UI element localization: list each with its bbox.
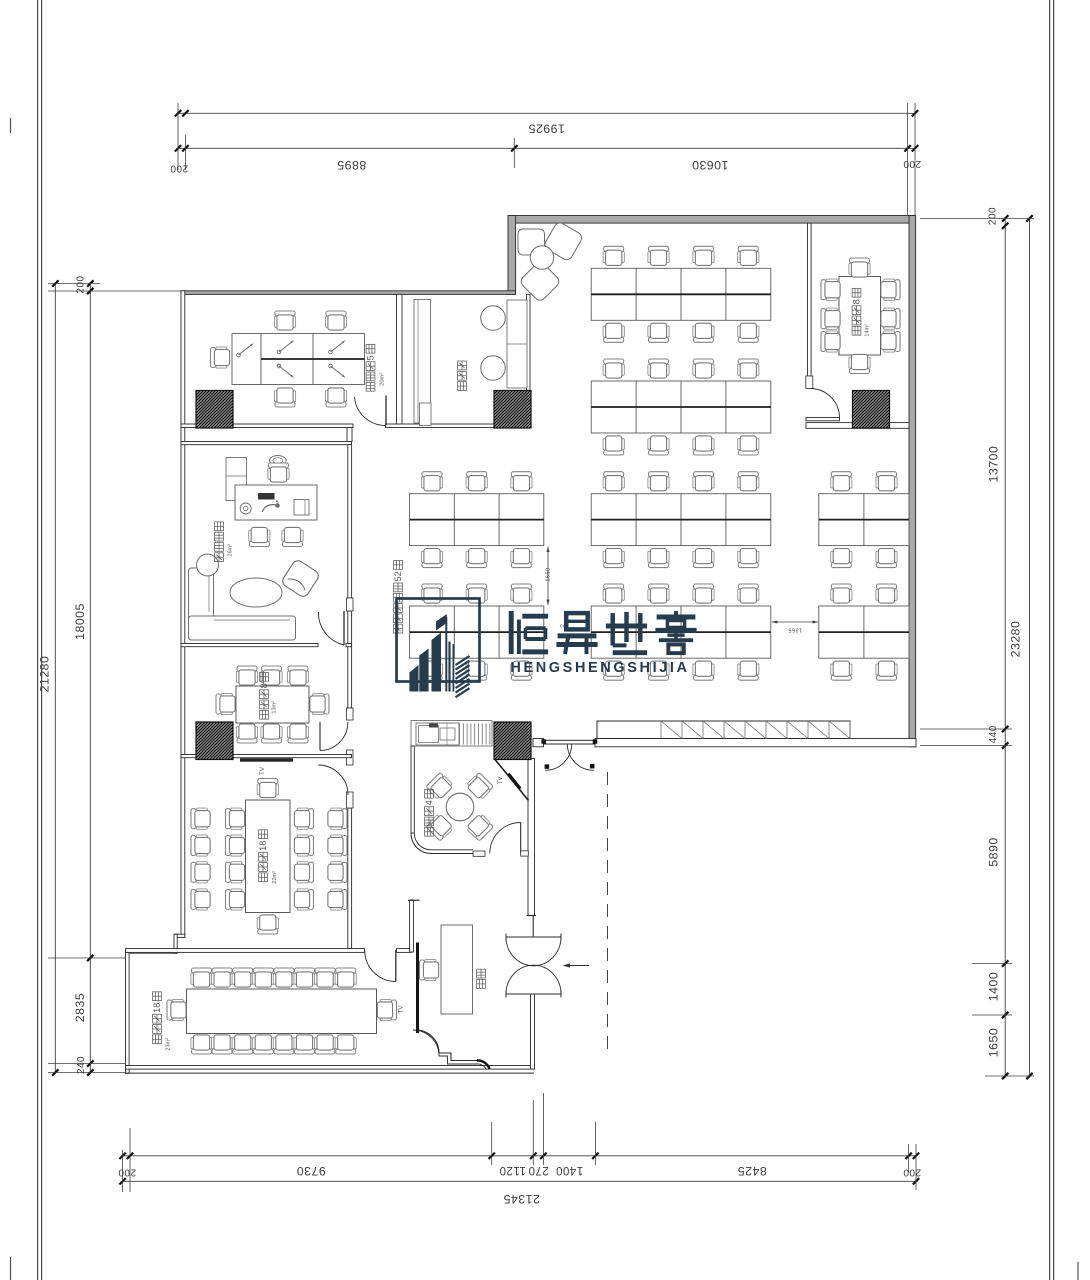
svg-text:200: 200 xyxy=(170,163,188,174)
svg-text:5890: 5890 xyxy=(987,837,1001,866)
svg-text:13m²: 13m² xyxy=(271,701,277,714)
svg-text:1365: 1365 xyxy=(788,627,802,633)
svg-text:10630: 10630 xyxy=(692,158,729,172)
svg-text:14m²: 14m² xyxy=(864,324,870,337)
svg-text:2835: 2835 xyxy=(73,993,87,1022)
svg-text:TV: TV xyxy=(497,776,504,785)
svg-text:200: 200 xyxy=(118,1167,136,1178)
svg-text:200: 200 xyxy=(903,158,921,169)
svg-text:5: 5 xyxy=(366,355,376,360)
svg-text:1650: 1650 xyxy=(546,567,552,581)
svg-text:8: 8 xyxy=(259,683,269,688)
svg-text:22m²: 22m² xyxy=(272,871,278,884)
svg-text:200: 200 xyxy=(903,1167,921,1178)
svg-text:8895: 8895 xyxy=(337,158,366,172)
svg-text:200: 200 xyxy=(76,275,87,293)
svg-text:26m²: 26m² xyxy=(228,544,234,557)
svg-text:1120: 1120 xyxy=(499,1164,526,1176)
svg-text:TV: TV xyxy=(398,1005,405,1014)
svg-text:19925: 19925 xyxy=(528,122,565,136)
svg-text:23m²: 23m² xyxy=(165,1038,171,1051)
svg-text:8425: 8425 xyxy=(737,1164,766,1178)
svg-text:20m²: 20m² xyxy=(379,373,385,386)
svg-text:440: 440 xyxy=(988,725,999,743)
svg-text:200: 200 xyxy=(988,207,999,225)
svg-text:18: 18 xyxy=(258,841,268,851)
svg-text:240: 240 xyxy=(76,1056,87,1074)
svg-text:18005: 18005 xyxy=(73,603,87,640)
svg-text:1650: 1650 xyxy=(987,1028,1001,1057)
svg-text:270: 270 xyxy=(528,1164,549,1176)
svg-text:18: 18 xyxy=(152,1003,162,1013)
svg-text:21345: 21345 xyxy=(503,1192,540,1206)
svg-text:13700: 13700 xyxy=(987,446,1001,483)
svg-text:TV: TV xyxy=(259,766,266,775)
svg-text:1400: 1400 xyxy=(987,972,1001,1001)
svg-text:8: 8 xyxy=(852,299,862,304)
svg-text:52: 52 xyxy=(393,571,403,581)
svg-text:HENGSHENGSHIJIA: HENGSHENGSHIJIA xyxy=(510,660,689,676)
svg-text:21280: 21280 xyxy=(38,656,52,693)
svg-text:1400: 1400 xyxy=(556,1164,584,1176)
svg-text:23280: 23280 xyxy=(1009,621,1023,658)
svg-text:4: 4 xyxy=(424,800,434,805)
svg-text:9730: 9730 xyxy=(296,1164,325,1178)
